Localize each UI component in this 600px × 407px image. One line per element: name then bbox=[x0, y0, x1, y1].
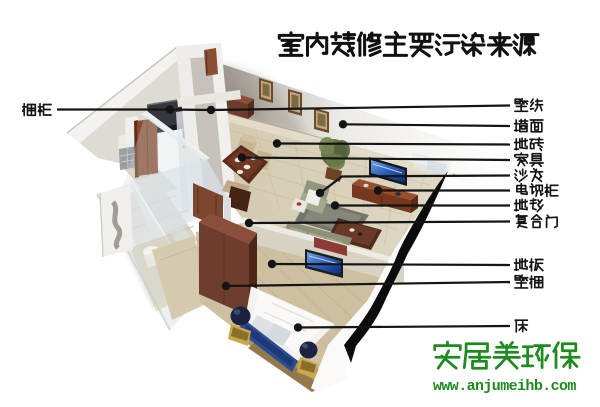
svg-text:www.anjumeihb.com: www.anjumeihb.com bbox=[433, 378, 576, 395]
